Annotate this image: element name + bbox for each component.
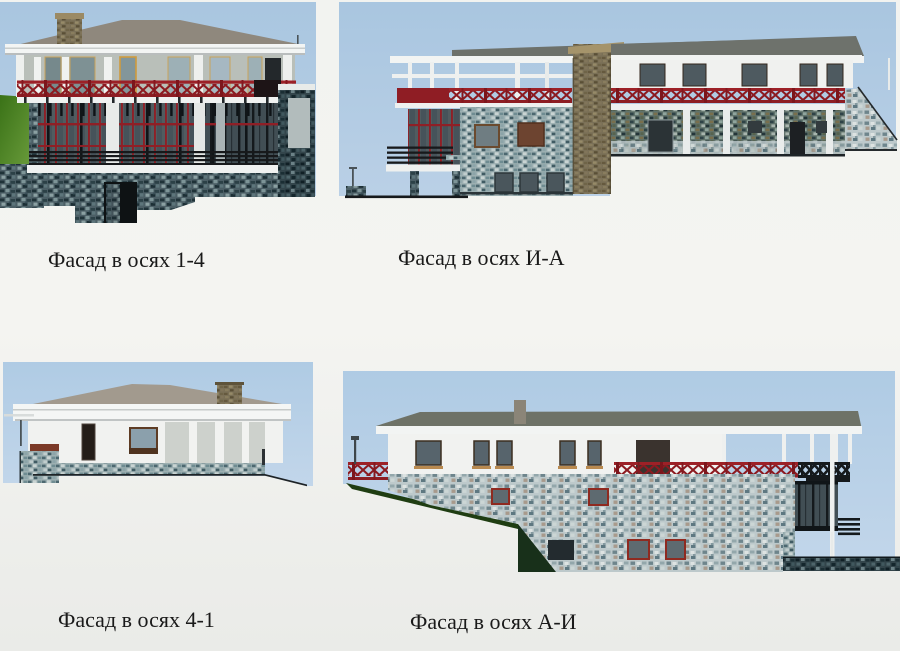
svg-text:Фасад в осях 4-1: Фасад в осях 4-1 [58, 607, 215, 632]
svg-text:Фасад в осях 1-4: Фасад в осях 1-4 [48, 247, 205, 272]
svg-text:Фасад в осях А-И: Фасад в осях А-И [410, 609, 577, 634]
svg-text:Фасад в осях И-А: Фасад в осях И-А [398, 245, 565, 270]
